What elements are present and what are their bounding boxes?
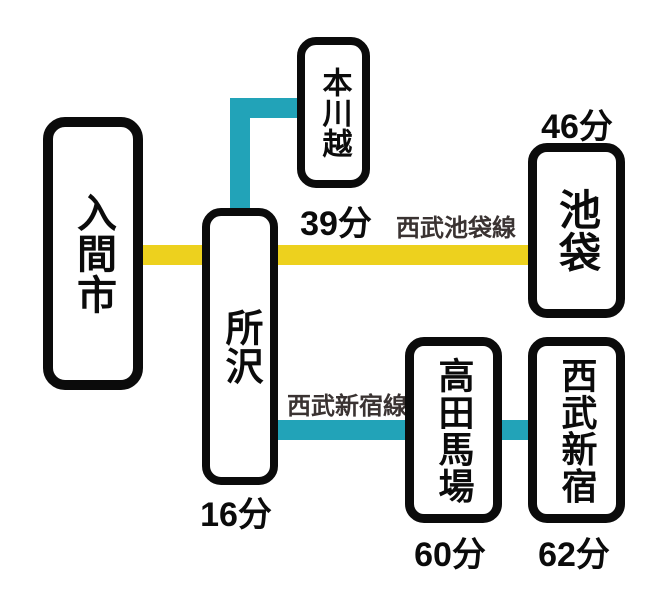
station-name-seibu-shinjuku: 西武新宿 (559, 357, 595, 504)
station-name-takadanobaba: 高田馬場 (436, 357, 472, 504)
station-name-ikebukuro: 池袋 (556, 188, 598, 274)
hon-kawagoe-branch-vertical-segment (230, 98, 250, 213)
time-label-hon-kawagoe: 39分 (266, 196, 406, 245)
station-box-hon-kawagoe: 本川越 (297, 37, 370, 188)
station-box-takadanobaba: 高田馬場 (405, 337, 502, 523)
time-label-tokorozawa: 16分 (166, 487, 306, 536)
route-diagram: 西武池袋線 西武新宿線 入間市 所沢 本川越 池袋 高田馬場 西武新宿 39分 … (0, 0, 668, 605)
station-box-ikebukuro: 池袋 (528, 143, 625, 318)
time-label-seibu-shinjuku: 62分 (504, 527, 644, 576)
station-name-hon-kawagoe: 本川越 (319, 67, 349, 159)
time-label-takadanobaba: 60分 (380, 527, 520, 576)
station-box-iruma-shi: 入間市 (43, 117, 143, 390)
station-name-iruma-shi: 入間市 (73, 192, 113, 314)
seibu-shinjuku-line-label: 西武新宿線 (287, 386, 407, 421)
seibu-ikebukuro-line-segment (138, 245, 535, 265)
station-box-seibu-shinjuku: 西武新宿 (528, 337, 625, 523)
station-name-tokorozawa: 所沢 (221, 308, 259, 386)
station-box-tokorozawa: 所沢 (202, 208, 278, 485)
time-label-ikebukuro: 46分 (507, 99, 647, 148)
